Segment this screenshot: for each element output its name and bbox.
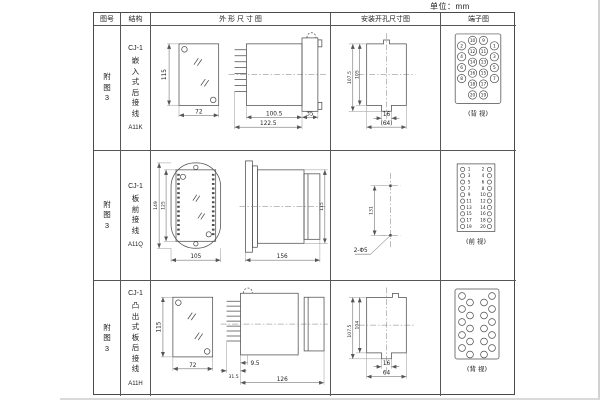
dim-hole-inner-height: 105 [354,70,360,79]
svg-text:12: 12 [480,199,486,205]
svg-text:12: 12 [470,49,476,55]
col-header-outline-label: 外 形 尺 寸 图 [219,14,262,24]
dim-hole-outer-height: 107.5 [347,71,353,84]
svg-text:2: 2 [482,167,485,173]
row2-outline-cell: 149 125 105 156 115 [151,151,331,281]
view-caption: (背 视) [468,108,488,117]
dim-height: 115 [162,69,168,80]
terminal-numbers: 12 34 56 78 910 1112 1314 1516 1718 1920 [466,167,486,230]
svg-text:19: 19 [481,92,487,98]
svg-text:11: 11 [466,199,472,205]
svg-text:11: 11 [481,49,487,55]
row3-install-drawing: 107.5 104 16 64 [331,281,440,396]
svg-text:15: 15 [481,71,487,77]
fig-label: 附 图 3 [103,200,111,232]
svg-text:9: 9 [468,192,471,198]
dim-slot-width: 16 [383,112,391,118]
row1-install-drawing: 107.5 105 16 (64) [331,26,440,150]
dimension-table: 图号 结构 外 形 尺 寸 图 安装开孔尺寸图 端子图 附 图 3 CJ-1 嵌… [93,12,515,395]
dim-inner-height: 125 [161,201,167,210]
col-header-fig-no: 图号 [94,13,121,26]
terminal-circles [459,293,496,358]
svg-text:10: 10 [480,192,486,198]
svg-text:5: 5 [468,179,471,185]
type-code: A11Q [128,242,143,248]
svg-text:13: 13 [466,205,472,211]
svg-text:13: 13 [481,60,487,66]
unit-label: 单位：mm [430,1,470,12]
dim-body-length: 100.5 [266,111,283,117]
svg-text:17: 17 [481,82,487,88]
svg-text:4: 4 [482,173,485,179]
row3-outline-drawing: 115 72 9.5 31.5 126 [151,281,330,396]
view-caption: (前 视) [466,236,486,245]
type-code: A11K [128,125,142,131]
terminal-circles [461,167,492,228]
svg-text:14: 14 [480,205,486,211]
svg-text:18: 18 [470,82,476,88]
dim-span-width: (64) [381,121,393,127]
row3-terminal-diagram: (背 视) [441,281,516,396]
row1-outline-drawing: 115 72 100.5 35 122.5 [151,26,330,150]
col-header-terminal: 端子图 [441,13,516,26]
dim-hole-spacing: 131 [369,206,375,215]
row2-structure: CJ-1 板 前 接 线 A11Q [121,151,151,281]
row1-terminal-cell: 109 1211 1413 1615 1817 2019 21 43 65 87… [441,26,516,151]
row2-install-drawing: 131 2-Φ5 [331,151,440,280]
hole-center-top [389,185,391,187]
svg-text:17: 17 [466,218,472,224]
dim-flange: 35 [306,111,314,117]
svg-text:10: 10 [470,38,476,44]
svg-text:8: 8 [482,186,485,192]
row2-install-cell: 131 2-Φ5 [331,151,441,281]
front-view: 115 72 [162,44,219,117]
row1-terminal-diagram: 109 1211 1413 1615 1817 2019 21 43 65 87… [441,26,516,150]
row2-outline-drawing: 149 125 105 156 115 [151,151,330,280]
side-view: 156 115 [240,161,328,262]
view-caption: (背 视) [467,364,487,373]
row1-outline-cell: 115 72 100.5 35 122.5 [151,26,331,151]
col-header-structure: 结构 [121,13,151,26]
dim-outer-height: 149 [153,201,159,210]
svg-text:18: 18 [480,218,486,224]
side-view: 9.5 31.5 126 [221,288,328,385]
svg-text:16: 16 [480,211,486,217]
row1-structure: CJ-1 嵌 入 式 后 接 线 A11K [121,26,151,151]
svg-text:14: 14 [470,60,476,66]
svg-text:9: 9 [482,38,485,44]
col-header-structure-label: 结构 [129,14,143,24]
front-view: 115 72 [156,297,212,371]
col-header-install: 安装开孔尺寸图 [331,13,441,26]
col-header-fig-no-label: 图号 [100,14,114,24]
svg-text:8: 8 [460,76,463,82]
dim-height: 115 [156,321,162,332]
col-header-install-label: 安装开孔尺寸图 [361,14,410,24]
svg-text:1: 1 [468,167,471,173]
dim-span-width: 64 [383,371,391,377]
dim-height: 115 [319,202,325,211]
svg-text:4: 4 [460,54,463,60]
col-header-outline: 外 形 尺 寸 图 [151,13,331,26]
svg-text:5: 5 [493,65,496,71]
svg-text:20: 20 [470,92,476,98]
row2-fig-no: 附 图 3 [94,151,121,281]
svg-text:7: 7 [468,186,471,192]
row3-fig-no: 附 图 3 [94,281,121,396]
svg-text:2: 2 [460,43,463,49]
dim-width: 105 [190,254,201,260]
svg-text:19: 19 [466,224,472,230]
svg-text:3: 3 [468,173,471,179]
dim-width: 72 [189,363,197,369]
row3-outline-cell: 115 72 9.5 31.5 126 [151,281,331,396]
row1-fig-no: 附 图 3 [94,26,121,151]
dim-hole-inner-height: 104 [354,321,360,330]
model-label: CJ-1 [128,183,143,190]
svg-text:7: 7 [493,76,496,82]
hole-spec-label: 2-Φ5 [354,248,368,254]
svg-text:15: 15 [466,211,472,217]
structure-name: 凸 出 式 板 后 接 线 [132,301,140,375]
svg-text:6: 6 [482,179,485,185]
row2-terminal-cell: 12 34 56 78 910 1112 1314 1516 1718 1920… [441,151,516,281]
side-view: 100.5 35 122.5 [229,33,328,129]
row3-terminal-cell: (背 视) [441,281,516,396]
svg-text:1: 1 [493,43,496,49]
dim-overall-length: 126 [277,377,288,383]
dim-hole-outer-height: 107.5 [347,324,353,337]
fig-label: 附 图 3 [103,323,111,355]
dim-overall-length: 122.5 [260,121,277,127]
row2-terminal-diagram: 12 34 56 78 910 1112 1314 1516 1718 1920… [441,151,516,280]
col-header-terminal-label: 端子图 [468,14,489,24]
front-view: 149 125 105 [153,163,221,262]
model-label: CJ-1 [128,45,143,52]
structure-name: 嵌 入 式 后 接 线 [132,56,140,119]
dim-pin-length: 31.5 [228,374,238,380]
manual-page: 单位：mm 图号 结构 外 形 尺 寸 图 安装开孔尺寸图 端子图 附 图 3 … [0,0,600,400]
dim-length: 156 [277,254,288,260]
dim-inset: 9.5 [250,361,259,367]
type-code: A11H [128,381,143,387]
svg-text:3: 3 [493,54,496,60]
structure-name: 板 前 接 线 [132,194,140,236]
hole-center-bottom [389,234,391,236]
fig-label: 附 图 3 [103,72,111,104]
svg-text:20: 20 [480,224,486,230]
model-label: CJ-1 [128,290,143,297]
svg-text:6: 6 [460,65,463,71]
row1-install-cell: 107.5 105 16 (64) [331,26,441,151]
svg-text:16: 16 [470,71,476,77]
dim-width: 72 [195,109,203,115]
row3-structure: CJ-1 凸 出 式 板 后 接 线 A11H [121,281,151,396]
row3-install-cell: 107.5 104 16 64 [331,281,441,396]
dim-slot-width: 16 [383,361,391,367]
